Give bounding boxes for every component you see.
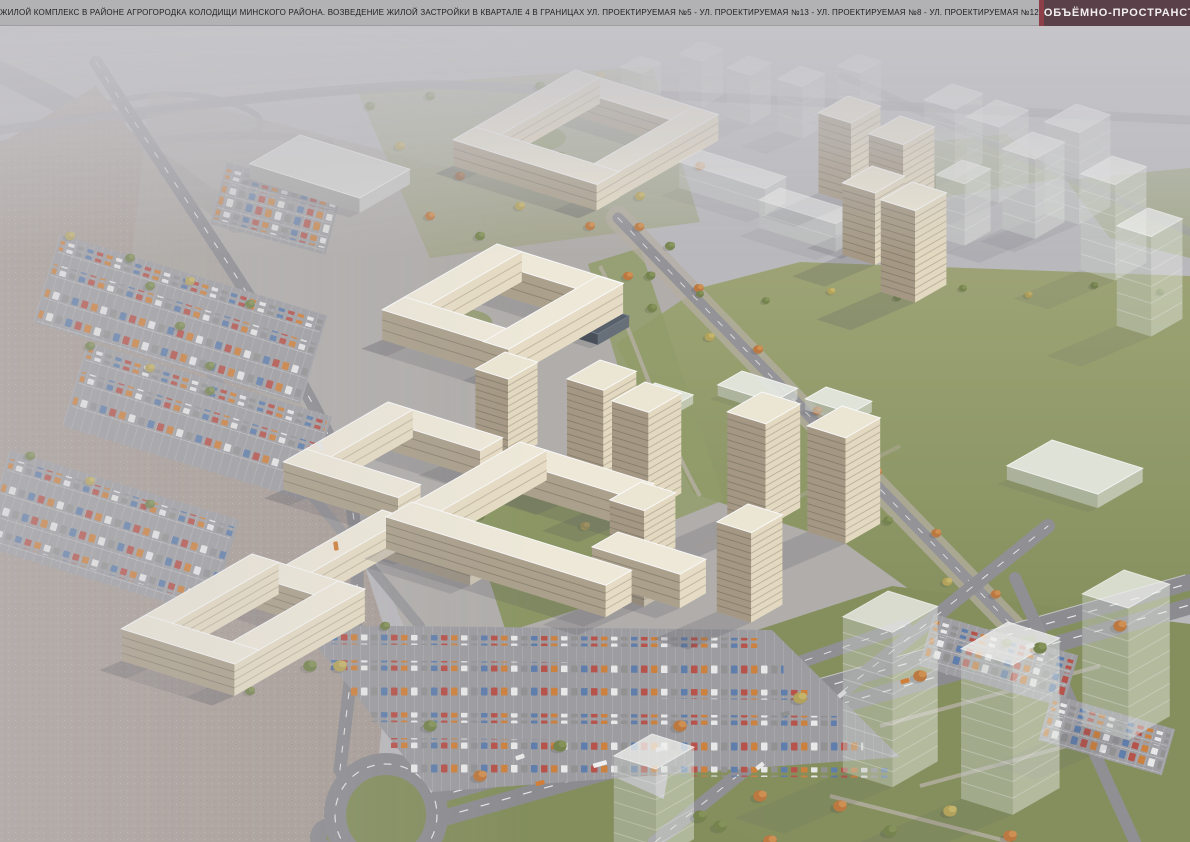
aerial-render-canvas [0, 26, 1190, 842]
presentation-board: ЖИЛОЙ КОМПЛЕКС В РАЙОНЕ АГРОГОРОДКА КОЛО… [0, 0, 1190, 842]
sheet-title-box: ОБЪЁМНО-ПРОСТРАНСТВЕННОЕ РЕШЕНИЕ [1039, 0, 1190, 26]
site-plan-render [0, 26, 1190, 842]
project-title: ЖИЛОЙ КОМПЛЕКС В РАЙОНЕ АГРОГОРОДКА КОЛО… [0, 8, 1039, 17]
sheet-title: ОБЪЁМНО-ПРОСТРАНСТВЕННОЕ РЕШЕНИЕ [1044, 7, 1190, 19]
project-title-strip: ЖИЛОЙ КОМПЛЕКС В РАЙОНЕ АГРОГОРОДКА КОЛО… [0, 0, 1039, 26]
header-bar: ЖИЛОЙ КОМПЛЕКС В РАЙОНЕ АГРОГОРОДКА КОЛО… [0, 0, 1190, 26]
haze-global [0, 26, 1190, 842]
